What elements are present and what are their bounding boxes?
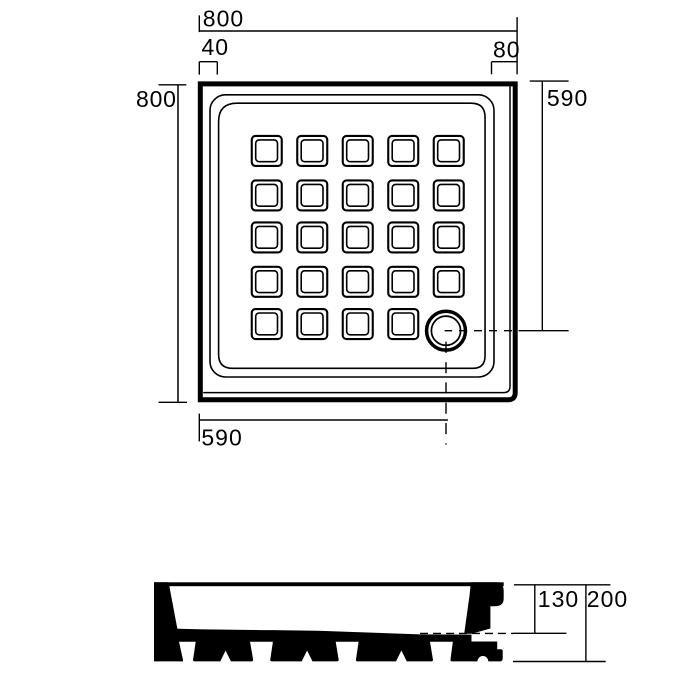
svg-text:800: 800 [203,5,244,31]
svg-text:590: 590 [547,85,588,111]
svg-text:590: 590 [201,424,242,450]
svg-text:200: 200 [587,586,628,612]
svg-text:800: 800 [136,86,177,112]
svg-text:40: 40 [202,34,230,60]
svg-text:130: 130 [538,586,579,612]
svg-text:80: 80 [493,37,521,63]
